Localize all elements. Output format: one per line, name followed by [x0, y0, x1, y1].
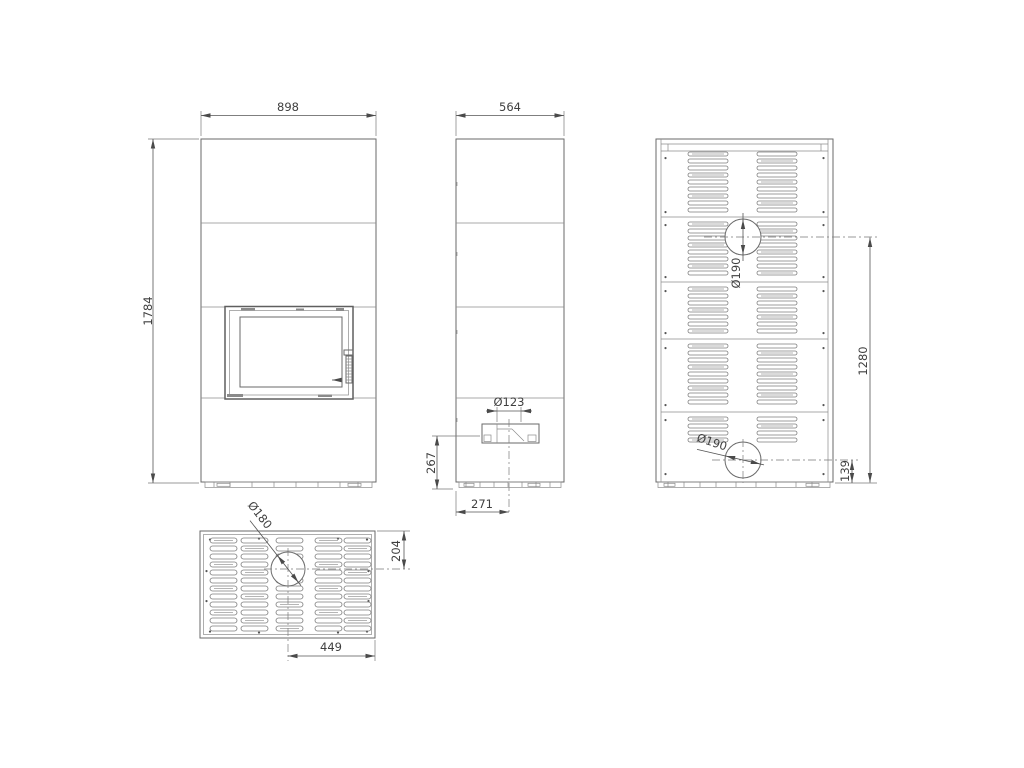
vent-slot	[688, 358, 728, 362]
rear-vents-band-4	[688, 344, 797, 404]
front-panel-seam-door-band	[201, 307, 376, 398]
rear-base-ticks	[668, 483, 812, 488]
vent-slot	[315, 618, 342, 623]
air-intake-bracket-left	[484, 435, 491, 442]
vent-slot	[688, 400, 728, 404]
top-flue-side-offset-dim-label: 449	[320, 640, 342, 654]
vent-slot	[688, 271, 728, 275]
front-base-foot-left	[217, 483, 230, 486]
vent-slot	[210, 618, 237, 623]
vent-slot	[688, 393, 728, 397]
technical-drawing-canvas: 898 1784 564	[0, 0, 1024, 768]
vent-slot	[688, 294, 728, 298]
rear-base-foot-left	[664, 483, 675, 486]
rear-base-foot-right	[806, 483, 819, 486]
vent-slot	[757, 379, 797, 383]
vent-slot	[757, 438, 797, 442]
vent-slot	[757, 243, 797, 247]
vent-slot	[688, 351, 728, 355]
vent-slot	[757, 329, 797, 333]
rear-upper-flue-diameter-label: Ø190	[729, 257, 743, 288]
rear-vents-band-1	[688, 152, 797, 212]
vent-slot	[210, 626, 237, 631]
vent-slot	[315, 546, 342, 551]
vent-slot	[276, 618, 303, 623]
vent-slot	[344, 578, 371, 583]
side-base-foot-left	[464, 483, 474, 486]
rear-view: Ø190 Ø190 1280 139	[656, 139, 877, 488]
side-intake-height-dim-label: 267	[424, 452, 438, 474]
top-flue-rear-offset-dim-label: 204	[389, 540, 403, 562]
vent-slot	[757, 358, 797, 362]
vent-slot	[210, 602, 237, 607]
intake-offset-dimension: 271	[456, 491, 509, 516]
front-view: 898 1784	[141, 100, 376, 488]
front-height-extension-lines	[148, 139, 199, 483]
vent-slot	[315, 594, 342, 599]
vent-slot	[315, 570, 342, 575]
vent-slot	[344, 586, 371, 591]
vent-slot	[688, 236, 728, 240]
vent-slot	[210, 594, 237, 599]
door-handle-shaft	[346, 356, 352, 383]
front-height-dim-label: 1784	[141, 296, 155, 325]
vent-slot	[688, 372, 728, 376]
front-width-extension-lines	[201, 111, 376, 136]
air-intake-inner-lines	[497, 424, 524, 443]
vent-slot	[276, 594, 303, 599]
vent-slot	[688, 379, 728, 383]
front-base-ticks	[214, 483, 358, 488]
vent-slot	[757, 208, 797, 212]
fire-door-hinge-marks	[227, 308, 344, 397]
side-depth-dimension: 564	[456, 100, 564, 136]
vent-slot	[757, 308, 797, 312]
vent-slot	[688, 257, 728, 261]
vent-slot	[688, 250, 728, 254]
vent-slot	[757, 166, 797, 170]
vent-slot	[757, 301, 797, 305]
side-body-outline	[456, 139, 564, 482]
vent-slot	[757, 152, 797, 156]
vent-slot	[757, 417, 797, 421]
vent-slot	[757, 194, 797, 198]
vent-slot	[688, 208, 728, 212]
side-intake-offset-dim-label: 271	[471, 497, 493, 511]
side-intake-diameter-label: Ø123	[493, 395, 524, 409]
vent-slot	[757, 344, 797, 348]
vent-slot	[688, 180, 728, 184]
vent-slot	[757, 173, 797, 177]
top-flue-side-offset-dimension: 449	[288, 640, 375, 661]
side-panel-seams	[456, 223, 564, 398]
top-flue-diameter-label: Ø180	[245, 498, 275, 531]
side-base-foot-right	[528, 483, 540, 486]
vent-slot	[210, 578, 237, 583]
vent-slot	[315, 626, 342, 631]
vent-slot	[688, 315, 728, 319]
vent-slot	[276, 538, 303, 543]
rear-top-bar	[661, 144, 828, 151]
vent-slot	[757, 322, 797, 326]
vent-slot	[688, 159, 728, 163]
vent-slot	[757, 287, 797, 291]
vent-slot	[688, 322, 728, 326]
vent-slot	[688, 166, 728, 170]
vent-slot	[241, 610, 268, 615]
rear-lower-flue: Ø190	[695, 431, 858, 483]
vent-slot	[688, 424, 728, 428]
fire-door-glass	[240, 317, 342, 387]
vent-slot	[688, 301, 728, 305]
vent-slot	[315, 554, 342, 559]
vent-slot	[241, 602, 268, 607]
vent-slot	[344, 602, 371, 607]
vent-slot	[276, 546, 303, 551]
vent-slot	[210, 570, 237, 575]
vent-slot	[757, 187, 797, 191]
vent-slot	[344, 554, 371, 559]
vent-slot	[688, 187, 728, 191]
rear-flue-height-dimension: 1280	[835, 238, 877, 484]
rear-vents-band-3	[688, 287, 797, 333]
vent-slot	[757, 222, 797, 226]
side-width-dim-label: 564	[499, 100, 521, 114]
front-base-foot-right	[348, 483, 361, 486]
vent-slot	[276, 586, 303, 591]
vent-slot	[344, 626, 371, 631]
front-width-dimension: 898	[201, 100, 376, 136]
top-flue: Ø180	[245, 498, 410, 661]
vent-slot	[315, 578, 342, 583]
vent-slot	[757, 400, 797, 404]
vent-slot	[757, 257, 797, 261]
fire-door-inner-frame	[230, 311, 349, 396]
front-width-dim-label: 898	[277, 100, 299, 114]
technical-drawing-page: 898 1784 564	[0, 0, 1024, 768]
vent-slot	[241, 578, 268, 583]
vent-slot	[757, 264, 797, 268]
vent-slot	[241, 554, 268, 559]
vent-slot	[688, 229, 728, 233]
vent-slot	[344, 610, 371, 615]
rear-lower-flue-height-dimension: 139	[838, 460, 852, 483]
vent-slot	[688, 201, 728, 205]
vent-slot	[757, 236, 797, 240]
side-view: 564 Ø123 267 271	[424, 100, 564, 516]
air-intake-housing	[482, 424, 539, 443]
vent-slot	[210, 554, 237, 559]
top-flue-rear-offset-dimension: 204	[377, 531, 410, 569]
vent-slot	[757, 431, 797, 435]
fire-door-frame	[225, 307, 353, 400]
rear-upper-flue: Ø190	[704, 213, 877, 289]
side-depth-extension-lines	[456, 111, 564, 136]
vent-slot	[241, 586, 268, 591]
vent-slot	[757, 386, 797, 390]
vent-slot	[344, 562, 371, 567]
vent-slot	[241, 626, 268, 631]
top-view: Ø180 204 449	[200, 498, 410, 661]
intake-height-dimension: 267	[424, 436, 480, 489]
intake-diameter-dimension: Ø123	[486, 395, 532, 422]
rear-side-flanges	[661, 139, 828, 482]
vent-slot	[757, 365, 797, 369]
rear-flue-height-dim-label: 1280	[856, 346, 870, 375]
vent-slot	[241, 562, 268, 567]
rear-body-outline	[656, 139, 833, 482]
vent-slot	[315, 602, 342, 607]
vent-slot	[210, 546, 237, 551]
air-intake-bracket-right	[528, 435, 536, 442]
rear-lower-flue-height-dim-label: 139	[838, 460, 852, 482]
vent-slot	[276, 610, 303, 615]
front-height-dimension: 1784	[141, 139, 199, 483]
door-handle-ribs	[346, 359, 352, 380]
